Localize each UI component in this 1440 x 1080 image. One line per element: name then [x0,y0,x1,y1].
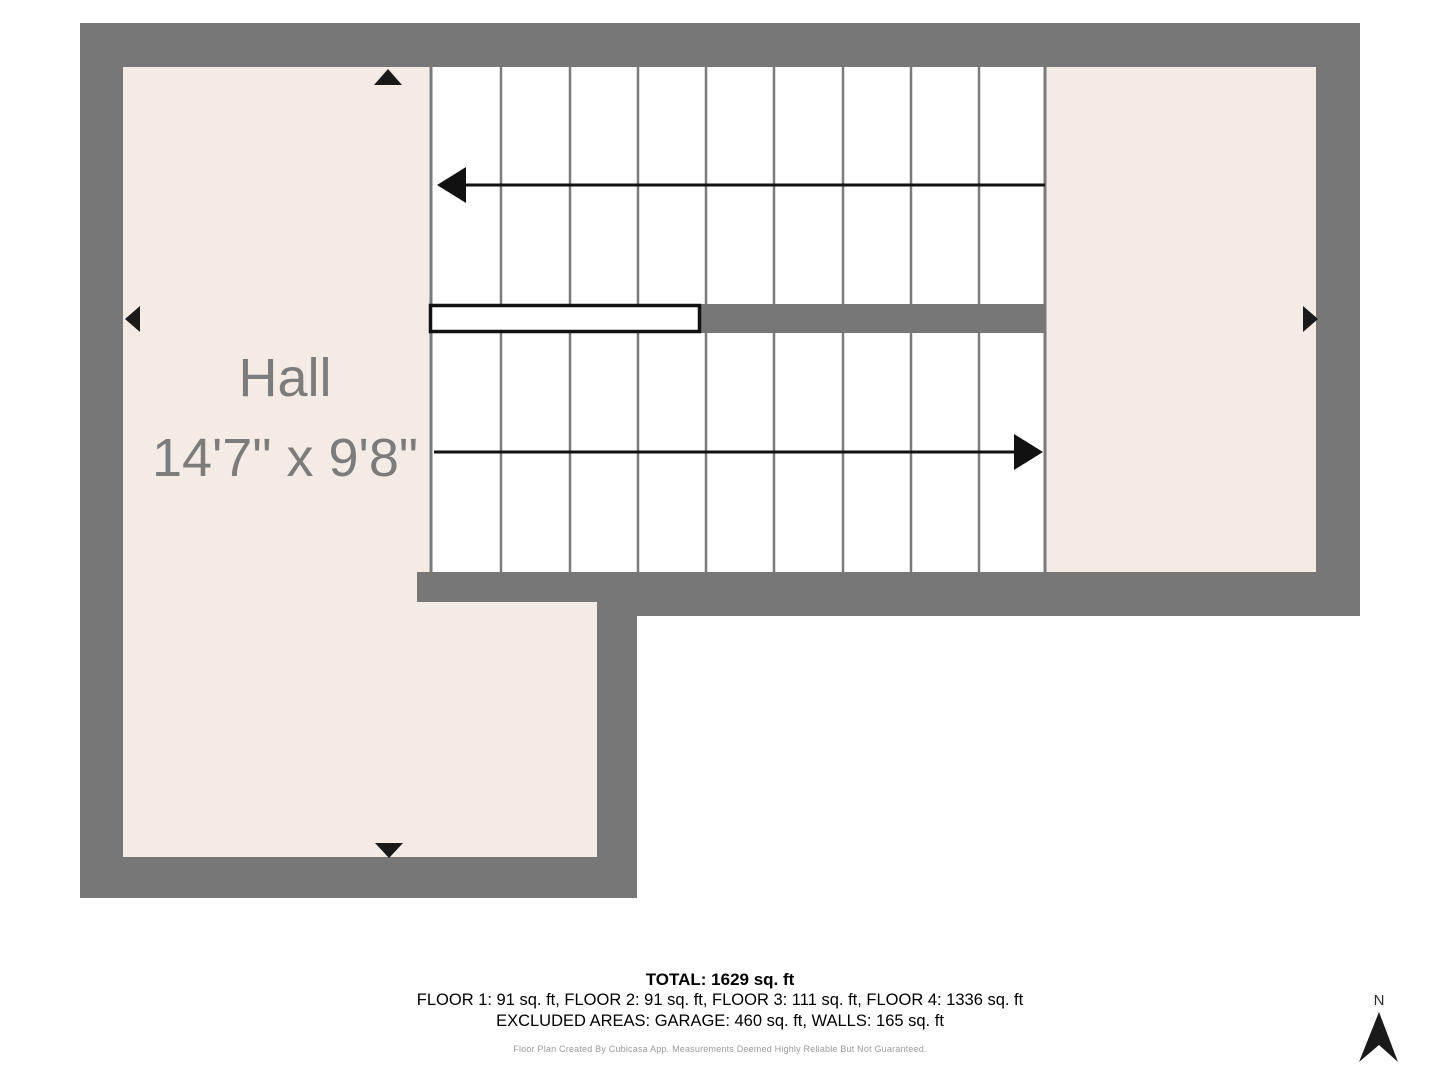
disclaimer-text: Floor Plan Created By Cubicasa App. Meas… [0,1044,1440,1054]
floor-plan-page: Hall 14'7" x 9'8" TOTAL: 1629 sq. ft FLO… [0,0,1440,1080]
stair-landing-rail [431,306,700,332]
excluded-areas-text: EXCLUDED AREAS: GARAGE: 460 sq. ft, WALL… [0,1011,1440,1032]
area-summary: TOTAL: 1629 sq. ft FLOOR 1: 91 sq. ft, F… [0,969,1440,1032]
wall-top [80,23,1360,67]
wall-bottom-left-section [80,857,637,898]
floor-areas-text: FLOOR 1: 91 sq. ft, FLOOR 2: 91 sq. ft, … [0,990,1440,1011]
staircase [431,67,1046,572]
wall-mid-vertical [597,572,637,898]
wall-bottom-right-section [637,572,1360,616]
north-label: N [1367,992,1391,1009]
total-area-text: TOTAL: 1629 sq. ft [0,969,1440,990]
hall-right-landing-area [1045,67,1316,572]
wall-right [1316,23,1360,616]
floor-plan-svg [0,0,1440,1080]
wall-left [80,23,123,898]
hall-lower-area [123,602,597,857]
stair-divider-wall [701,304,1045,333]
